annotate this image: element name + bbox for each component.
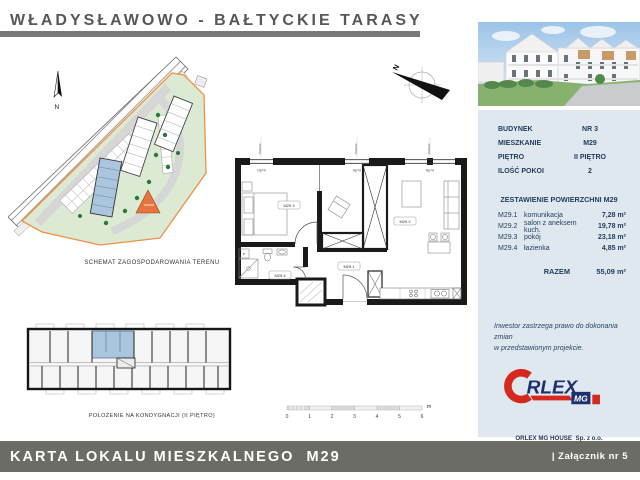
area-name: komunikacja <box>524 212 584 219</box>
field-row-building: BUDYNEK NR 3 <box>478 122 640 136</box>
field-row-floor: PIĘTRO II PIĘTRO <box>478 150 640 164</box>
area-row: M29.4 łazienka 4,85 m² <box>478 243 640 254</box>
apartment-m29-highlight <box>92 331 134 358</box>
scale-tick-1: 1 <box>308 414 311 420</box>
site-north-arrow: N <box>54 71 62 111</box>
area-name: łazienka <box>524 245 584 252</box>
areas-title: ZESTAWIENIE POWIERZCHNI M29 <box>478 195 640 204</box>
site-plan: N <box>8 55 223 255</box>
area-value: 7,28 m² <box>584 212 626 219</box>
footer-bar: KARTA LOKALU MIESZKALNEGO M29 | Załączni… <box>0 441 640 472</box>
building-label: BUDYNEK <box>498 126 562 133</box>
apartment-value: M29 <box>562 140 618 147</box>
logo-main-text: RLEX <box>527 377 579 398</box>
scale-unit: m <box>427 404 432 410</box>
neighbor-building <box>478 62 504 82</box>
logo-sub-text: MG <box>574 393 588 403</box>
scale-tick-0: 0 <box>286 414 289 420</box>
apartment-floorplan: 150/220 150/220 150/220 <box>225 125 475 320</box>
entry-step <box>297 279 325 305</box>
field-row-rooms: ILOŚĆ POKOI 2 <box>478 164 640 178</box>
disclaimer-line-1: Inwestor zastrzega prawo do dokonania zm… <box>494 321 626 343</box>
washer-label: P <box>243 253 246 257</box>
compass-needle <box>392 72 450 100</box>
scale-tick-3: 3 <box>353 414 356 420</box>
footer-title: KARTA LOKALU MIESZKALNEGO M29 <box>10 449 341 465</box>
scale-tick-2: 2 <box>331 414 334 420</box>
area-value: 19,78 m² <box>584 223 626 230</box>
title-underline <box>0 31 420 37</box>
window-dim-1: 150/220 <box>258 143 262 154</box>
area-code: M29.4 <box>498 245 524 252</box>
room-label-m29-3: M29.3 <box>283 203 295 208</box>
scale-tick-5: 5 <box>398 414 401 420</box>
stair-core <box>117 358 135 368</box>
total-row: RAZEM 55,09 m² <box>478 265 640 277</box>
building-rendering <box>478 22 640 106</box>
scale-tick-4: 4 <box>376 414 379 420</box>
window-dim-lines <box>261 137 430 158</box>
logo-underline <box>530 395 572 400</box>
floor-label: PIĘTRO <box>498 154 562 161</box>
area-value: 4,85 m² <box>584 245 626 252</box>
area-name: pokój <box>524 234 584 241</box>
wardrobe-blocks <box>322 165 387 249</box>
area-row: M29.2 salon z aneksem kuch. 19,78 m² <box>478 221 640 232</box>
kitchen-annex <box>380 288 461 299</box>
orlex-logo: RLEX MG <box>499 369 619 409</box>
rooms-value: 2 <box>562 168 618 175</box>
room-label-m29-1: M29.1 <box>343 264 355 269</box>
area-code: M29.1 <box>498 212 524 219</box>
apartment-card-page: WŁADYSŁAWOWO - BAŁTYCKIE TARASY <box>0 0 640 480</box>
page-title: WŁADYSŁAWOWO - BAŁTYCKIE TARASY <box>10 12 423 30</box>
footer-attachment: | Załącznik nr 5 <box>552 451 628 462</box>
utility-building <box>195 76 207 88</box>
total-value: 55,09 m² <box>584 267 626 276</box>
location-plan-caption: POŁOŻENIE NA KONDYGNACJI (II PIĘTRO) <box>52 413 252 419</box>
area-code: M29.2 <box>498 223 524 230</box>
window-dim-3: 150/220 <box>427 143 431 154</box>
floor-location-plan <box>22 322 237 404</box>
apartment-label: MIESZKANIE <box>498 140 562 147</box>
scale-tick-6: 6 <box>421 414 424 420</box>
floorplan-compass: N <box>388 58 452 108</box>
info-panel: BUDYNEK NR 3 MIESZKANIE M29 PIĘTRO II PI… <box>478 110 640 437</box>
logo-red-block <box>592 394 600 404</box>
area-code: M29.3 <box>498 234 524 241</box>
tree <box>595 74 605 84</box>
field-row-apartment: MIESZKANIE M29 <box>478 136 640 150</box>
walls <box>235 158 467 305</box>
area-name: salon z aneksem kuch. <box>524 220 584 234</box>
building-value: NR 3 <box>562 126 618 133</box>
window-sill-label-1: Hp=0 <box>257 169 265 173</box>
room-label-m29-2: M29.2 <box>399 219 411 224</box>
window-dim-2: 150/220 <box>354 143 358 154</box>
area-row: M29.3 pokój 23,18 m² <box>478 232 640 243</box>
site-north-label: N <box>55 104 60 111</box>
disclaimer-line-2: w przedstawionym projekcie. <box>494 343 626 354</box>
rooms-label: ILOŚĆ POKOI <box>498 168 562 175</box>
site-plan-caption: SCHEMAT ZAGOSPODAROWANIA TERENU <box>52 260 252 266</box>
compass-north-label: N <box>391 63 401 72</box>
scale-bar: 0 1 2 3 4 5 6 m <box>283 398 433 424</box>
window-sill-label-3: Hp=0 <box>426 169 434 173</box>
disclaimer: Inwestor zastrzega prawo do dokonania zm… <box>494 321 626 355</box>
area-value: 23,18 m² <box>584 234 626 241</box>
total-label: RAZEM <box>544 267 570 276</box>
window-sill-label-2: Hp=0 <box>353 169 361 173</box>
room-label-m29-4: M29.4 <box>274 273 286 278</box>
floor-value: II PIĘTRO <box>562 154 618 161</box>
